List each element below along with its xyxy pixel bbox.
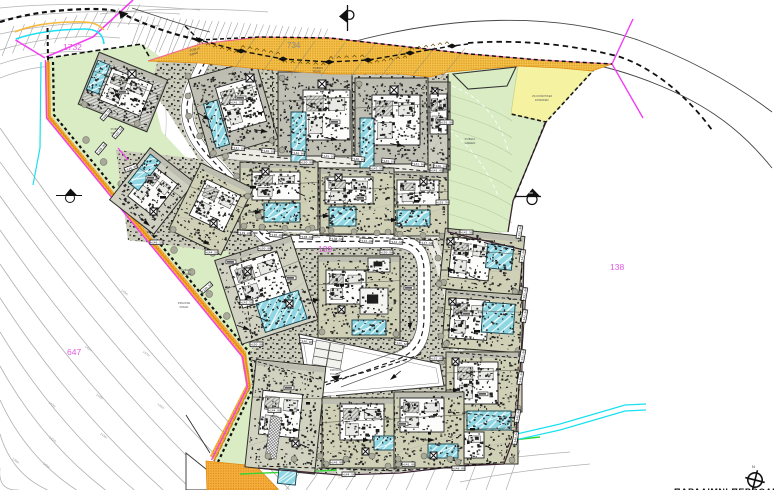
svg-text:+152.00: +152.00 [430,358,443,361]
svg-text:+142.50: +142.50 [460,232,473,235]
svg-text:+146.50: +146.50 [150,242,163,245]
svg-text:+150.00: +150.00 [380,252,393,255]
svg-text:734: 734 [287,41,301,50]
svg-text:138: 138 [610,262,624,272]
svg-text:+144.00: +144.00 [268,410,281,413]
svg-text:647: 647 [67,347,81,357]
svg-text:+141.00: +141.00 [430,170,443,173]
svg-text:ROAD: ROAD [313,70,321,74]
svg-text:ΕΠΙΧΩΣΕΙΣ: ΕΠΙΧΩΣΕΙΣ [535,98,549,102]
svg-text:GREEN: GREEN [465,141,476,145]
svg-text:+142.50: +142.50 [240,302,253,305]
svg-text:N: N [752,464,755,469]
svg-text:+146.00: +146.00 [330,462,343,465]
svg-text:1732: 1732 [63,42,82,52]
svg-text:+141.00: +141.00 [402,464,415,467]
svg-text:ROAD: ROAD [180,305,190,309]
svg-text:139: 139 [318,244,332,254]
svg-text:+151.00: +151.00 [440,122,453,125]
svg-text:+150.00: +150.00 [250,344,263,347]
svg-text:+141.50: +141.50 [230,102,243,105]
svg-text:+144.50: +144.50 [205,252,218,255]
svg-text:+143.50: +143.50 [370,168,383,171]
svg-text:+150.00: +150.00 [300,162,313,165]
svg-text:2% ΚΟΙΝΟΤΙΚΕΣ: 2% ΚΟΙΝΟΤΙΚΕΣ [532,94,553,98]
svg-text:+151.50: +151.50 [436,202,449,205]
svg-text:+144.50: +144.50 [342,474,355,477]
svg-text:+148.00: +148.00 [452,468,465,471]
svg-text:+150.00: +150.00 [258,248,271,251]
